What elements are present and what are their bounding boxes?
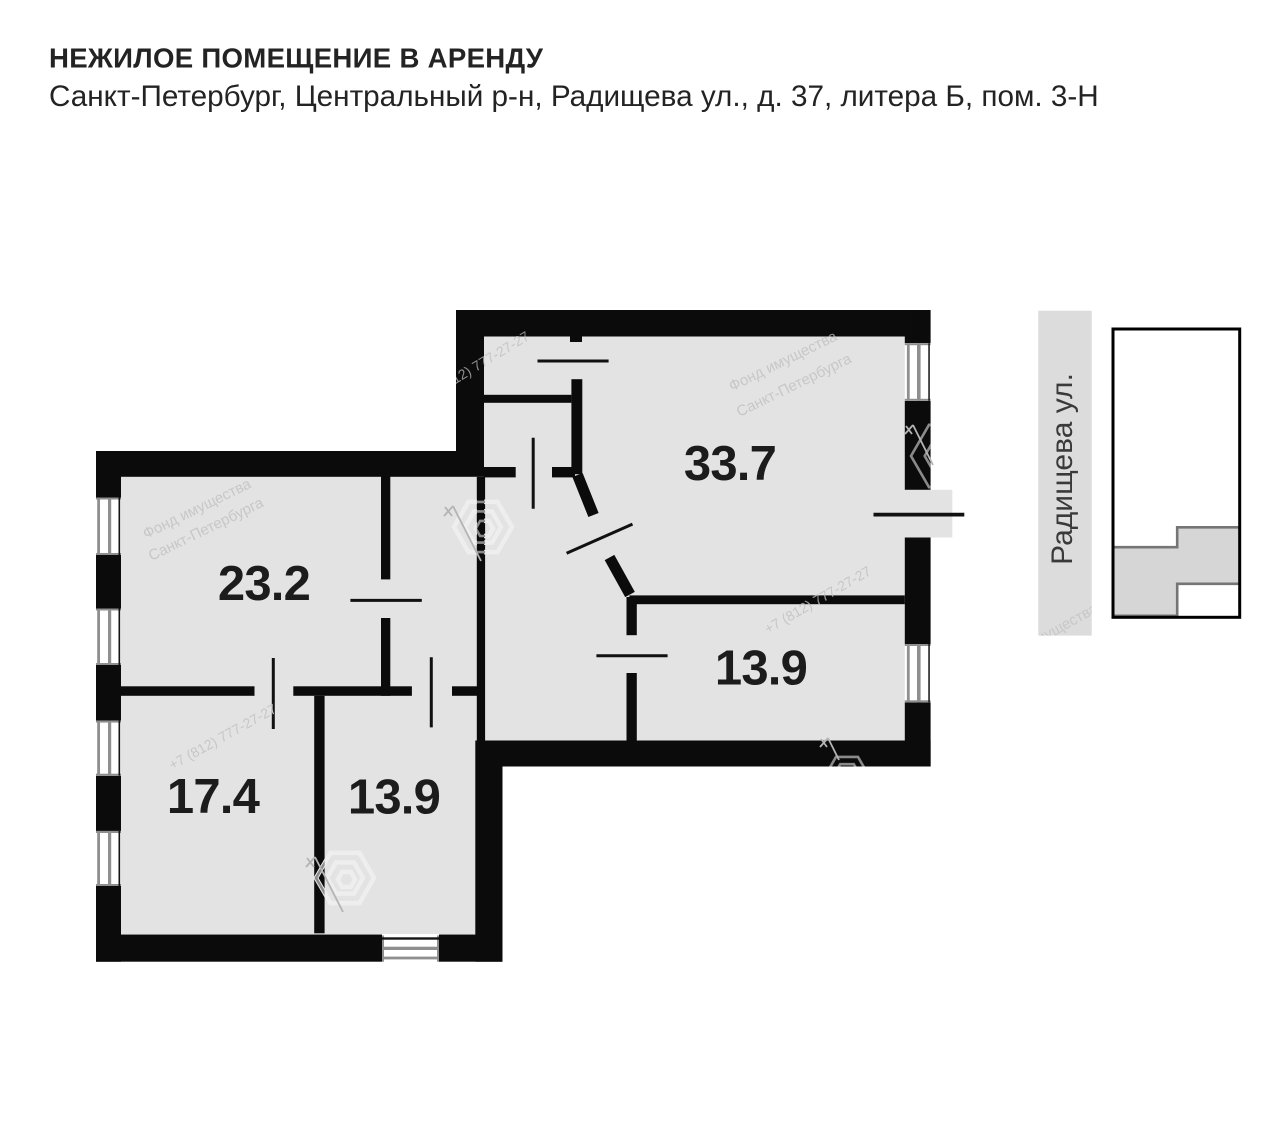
svg-text:23.2: 23.2 [218, 557, 310, 611]
svg-text:Санкт-Петербург, Центральный р: Санкт-Петербург, Центральный р-н, Радище… [49, 80, 1099, 113]
svg-text:13.9: 13.9 [715, 642, 807, 696]
svg-text:17.4: 17.4 [167, 770, 260, 824]
svg-text:Радищева ул.: Радищева ул. [1046, 373, 1079, 565]
svg-text:НЕЖИЛОЕ ПОМЕЩЕНИЕ В АРЕНДУ: НЕЖИЛОЕ ПОМЕЩЕНИЕ В АРЕНДУ [49, 43, 544, 74]
svg-text:33.7: 33.7 [684, 437, 776, 491]
svg-text:13.9: 13.9 [348, 771, 440, 825]
